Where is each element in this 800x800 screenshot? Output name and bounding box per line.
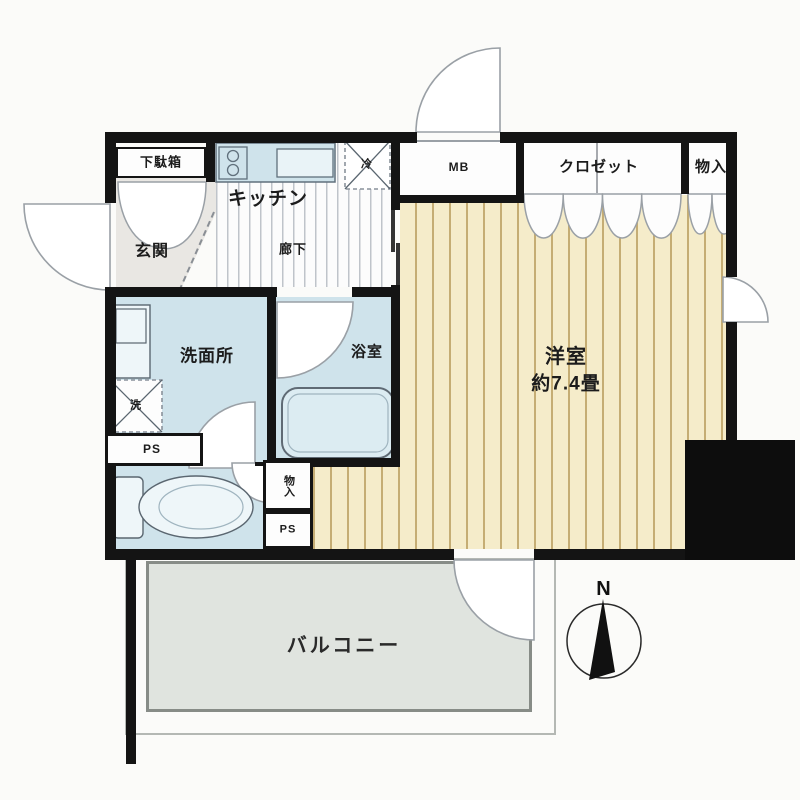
storage-top-label: 物入 [695, 160, 727, 175]
hallway-label: 廊下 [279, 243, 307, 256]
wall-hall-washroom [105, 287, 277, 297]
north-compass-icon [567, 599, 641, 680]
balcony-label: バルコニー [287, 636, 402, 656]
shoe-cabinet-label: 下駄箱 [140, 156, 182, 169]
right-side-door-arc [723, 277, 768, 322]
washer-mark-label: 洗 [130, 401, 142, 412]
bathtub-icon [282, 388, 394, 458]
kitchen-label: キッチン [228, 190, 308, 209]
sink-icon [277, 149, 333, 177]
washroom-label: 洗面所 [180, 348, 234, 365]
closet-label: クロゼット [559, 160, 639, 175]
wall-bottom-left [105, 549, 454, 560]
entrance-door-arc [24, 204, 110, 290]
sliding-door [391, 210, 400, 285]
balcony-door-arc [454, 560, 534, 640]
floor-plan: 下駄箱 玄関 キッチン 廊下 冷 MB クロゼット 物入 洗面所 浴室 洗 PS… [0, 0, 800, 800]
wall-right-upper [726, 132, 737, 277]
vanity-icon [112, 305, 150, 378]
north-label: N [596, 579, 611, 599]
kitchen-counter [216, 143, 335, 182]
meter-box-label: MB [449, 161, 470, 173]
bathroom-door-arc [277, 302, 353, 378]
pipe-space-upper-label: PS [143, 443, 161, 455]
wall-mainroom-left [391, 285, 400, 466]
genkan-label: 玄関 [135, 244, 169, 260]
closet-folding-door-arcs [524, 194, 736, 238]
wall-top-right [500, 132, 737, 143]
wall-closet-divider [681, 132, 689, 194]
pipe-space-lower-label: PS [280, 525, 297, 536]
western-room-label: 洋室 [545, 347, 587, 367]
western-room-size-label: 約7.4畳 [531, 375, 600, 394]
wall-right-lower [726, 322, 737, 440]
shoe-cabinet-door-arcs [118, 182, 206, 249]
structural-block [685, 440, 795, 560]
meter-box-door-arc [416, 48, 500, 132]
wall-washroom-bathroom [267, 287, 276, 466]
wall-genkan-stub [206, 143, 215, 182]
wall-mb-right [516, 143, 524, 202]
plan-details [0, 0, 800, 800]
wall-top-left [105, 132, 417, 143]
wall-bottom-right [534, 549, 685, 560]
wall-left-upper [105, 132, 116, 203]
small-storage-label: 物入 [283, 475, 294, 497]
toilet-icon [113, 476, 253, 538]
fridge-mark-label: 冷 [361, 160, 373, 171]
wall-mb-bottom [391, 195, 524, 203]
wall-left-lower [105, 290, 116, 560]
bathroom-label: 浴室 [351, 345, 383, 360]
